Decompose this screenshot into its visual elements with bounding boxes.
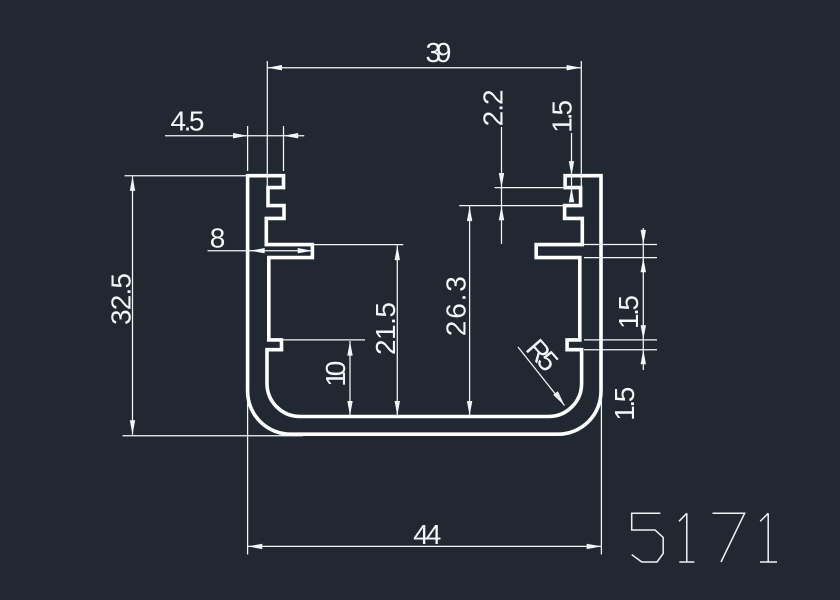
svg-text:39: 39	[426, 37, 452, 68]
svg-text:1.5: 1.5	[609, 387, 640, 421]
svg-text:4.5: 4.5	[171, 105, 205, 136]
svg-text:1.5: 1.5	[613, 295, 644, 329]
svg-text:32.5: 32.5	[106, 273, 137, 325]
svg-text:44: 44	[413, 519, 441, 550]
svg-text:1.5: 1.5	[547, 100, 578, 133]
svg-text:2.2: 2.2	[478, 89, 509, 126]
svg-text:10: 10	[320, 361, 351, 387]
svg-text:21.5: 21.5	[370, 302, 401, 355]
svg-text:26.3: 26.3	[440, 276, 471, 336]
svg-text:8: 8	[210, 223, 226, 254]
